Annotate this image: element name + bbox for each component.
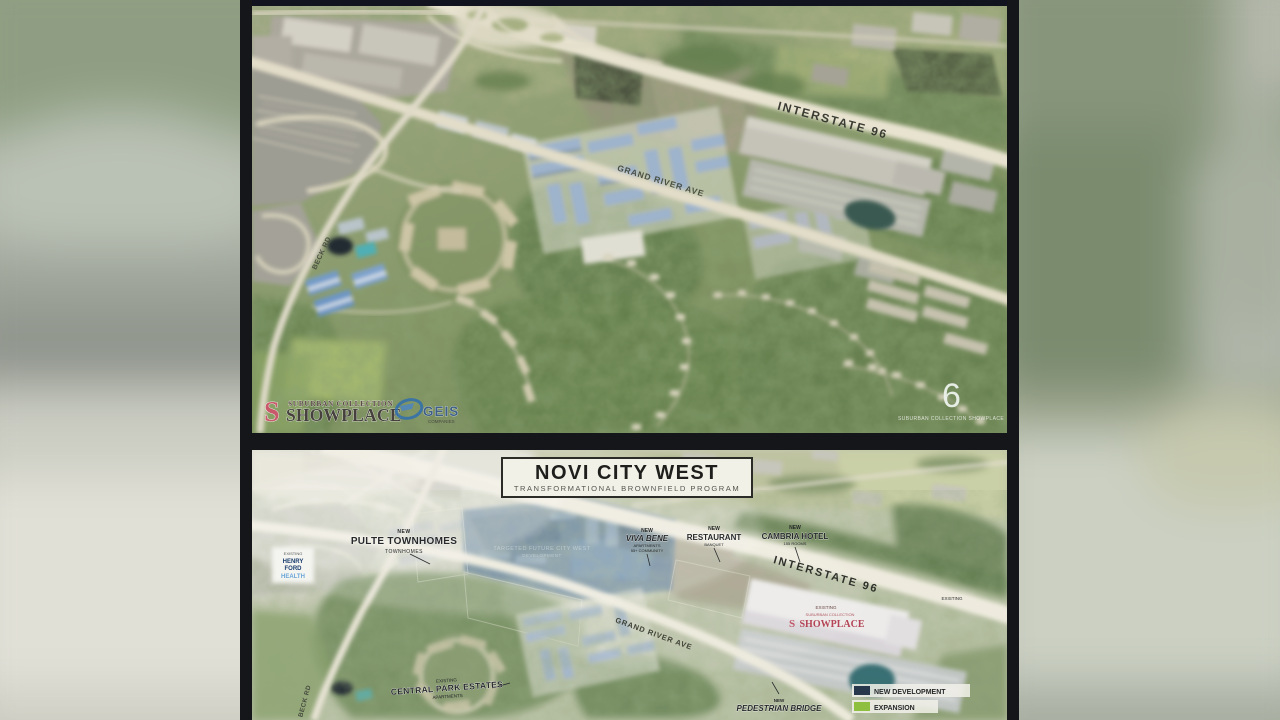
svg-text:NOVI CITY WEST: NOVI CITY WEST — [535, 462, 719, 484]
svg-text:RESTAURANT: RESTAURANT — [687, 533, 742, 542]
svg-text:NEW: NEW — [708, 526, 720, 532]
svg-text:HENRY: HENRY — [283, 559, 304, 565]
svg-text:6: 6 — [942, 377, 961, 415]
svg-text:VIVA BENE: VIVA BENE — [626, 534, 669, 543]
svg-text:PEDESTRIAN BRIDGE: PEDESTRIAN BRIDGE — [737, 704, 823, 713]
svg-text:S: S — [264, 397, 280, 428]
svg-text:SUBURBAN COLLECTION: SUBURBAN COLLECTION — [806, 612, 855, 617]
svg-text:NEW DEVELOPMENT: NEW DEVELOPMENT — [874, 689, 946, 696]
svg-text:HEALTH: HEALTH — [281, 574, 305, 580]
svg-text:PULTE TOWNHOMES: PULTE TOWNHOMES — [351, 536, 457, 547]
svg-text:NEW: NEW — [774, 698, 785, 703]
svg-text:EXISTING: EXISTING — [941, 596, 963, 601]
svg-text:SHOWPLACE: SHOWPLACE — [286, 405, 402, 425]
svg-text:EXISTING: EXISTING — [284, 551, 303, 556]
svg-text:EXISTING: EXISTING — [815, 605, 837, 610]
svg-text:SHOWPLACE: SHOWPLACE — [799, 619, 864, 630]
svg-text:GEIS: GEIS — [423, 404, 459, 419]
svg-text:NEW: NEW — [397, 529, 410, 535]
svg-text:EXPANSION: EXPANSION — [874, 705, 915, 712]
svg-text:TRANSFORMATIONAL BROWNFIELD PR: TRANSFORMATIONAL BROWNFIELD PROGRAM — [514, 484, 740, 493]
svg-text:FORD: FORD — [285, 566, 303, 572]
svg-text:CAMBRIA HOTEL: CAMBRIA HOTEL — [762, 532, 829, 541]
svg-text:COMPANIES: COMPANIES — [428, 419, 455, 424]
svg-text:BANQUET: BANQUET — [704, 542, 724, 547]
svg-text:NEW: NEW — [789, 525, 801, 531]
svg-text:55+ COMMUNITY: 55+ COMMUNITY — [631, 548, 664, 553]
svg-text:155 ROOMS: 155 ROOMS — [784, 541, 807, 546]
svg-text:TOWNHOMES: TOWNHOMES — [385, 549, 423, 555]
svg-text:SUBURBAN COLLECTION SHOWPLACE: SUBURBAN COLLECTION SHOWPLACE — [898, 416, 1004, 422]
svg-text:S: S — [789, 618, 795, 630]
